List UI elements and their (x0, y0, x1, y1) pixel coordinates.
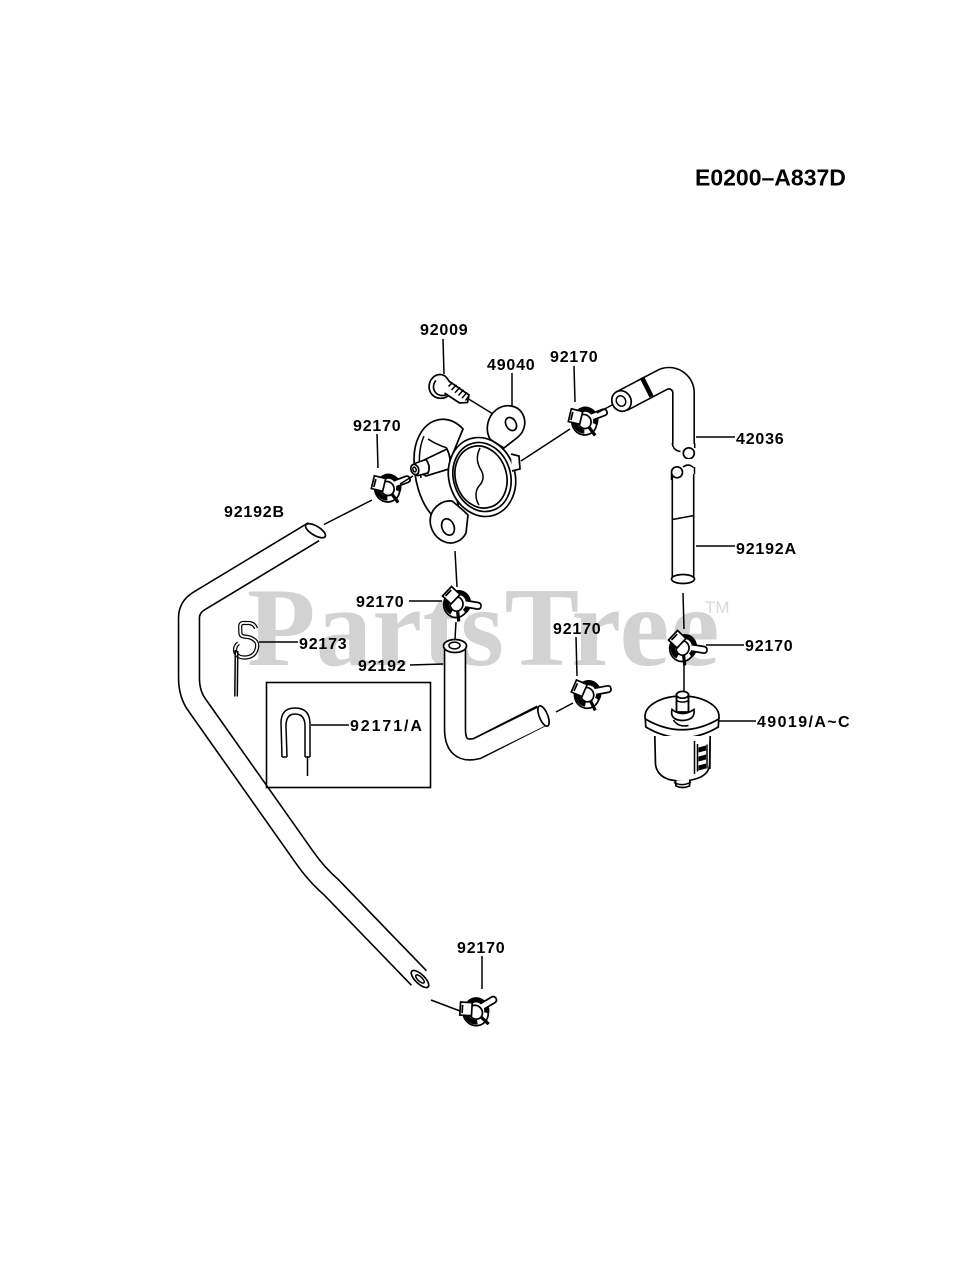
svg-text:92171/A: 92171/A (350, 718, 424, 735)
svg-text:92009: 92009 (420, 322, 469, 339)
svg-text:49040: 49040 (487, 357, 536, 374)
svg-text:92173: 92173 (299, 636, 348, 653)
svg-text:42036: 42036 (736, 431, 785, 448)
svg-text:92170: 92170 (745, 638, 794, 655)
svg-text:92192B: 92192B (224, 504, 285, 521)
svg-text:TM: TM (705, 598, 730, 617)
svg-text:92192: 92192 (358, 658, 407, 675)
svg-text:92170: 92170 (550, 349, 599, 366)
svg-text:49019/A~C: 49019/A~C (757, 714, 851, 731)
svg-text:92170: 92170 (457, 940, 506, 957)
svg-text:92170: 92170 (356, 594, 405, 611)
svg-text:92170: 92170 (353, 418, 402, 435)
svg-text:E0200–A837D: E0200–A837D (695, 165, 846, 191)
svg-text:92170: 92170 (553, 621, 602, 638)
svg-text:92192A: 92192A (736, 541, 797, 558)
svg-text:PartsTree: PartsTree (247, 566, 720, 690)
